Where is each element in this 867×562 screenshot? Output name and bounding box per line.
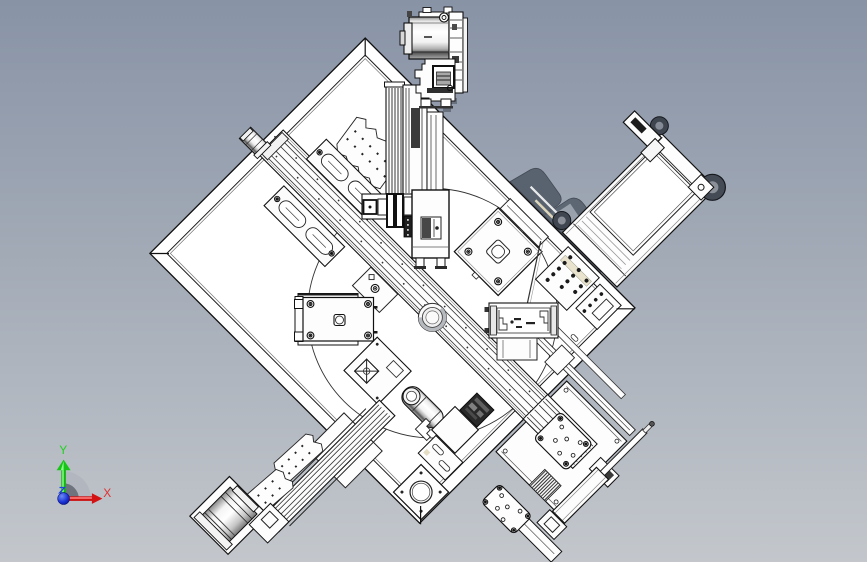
svg-text:Y: Y — [59, 443, 67, 457]
svg-text:X: X — [103, 486, 111, 500]
